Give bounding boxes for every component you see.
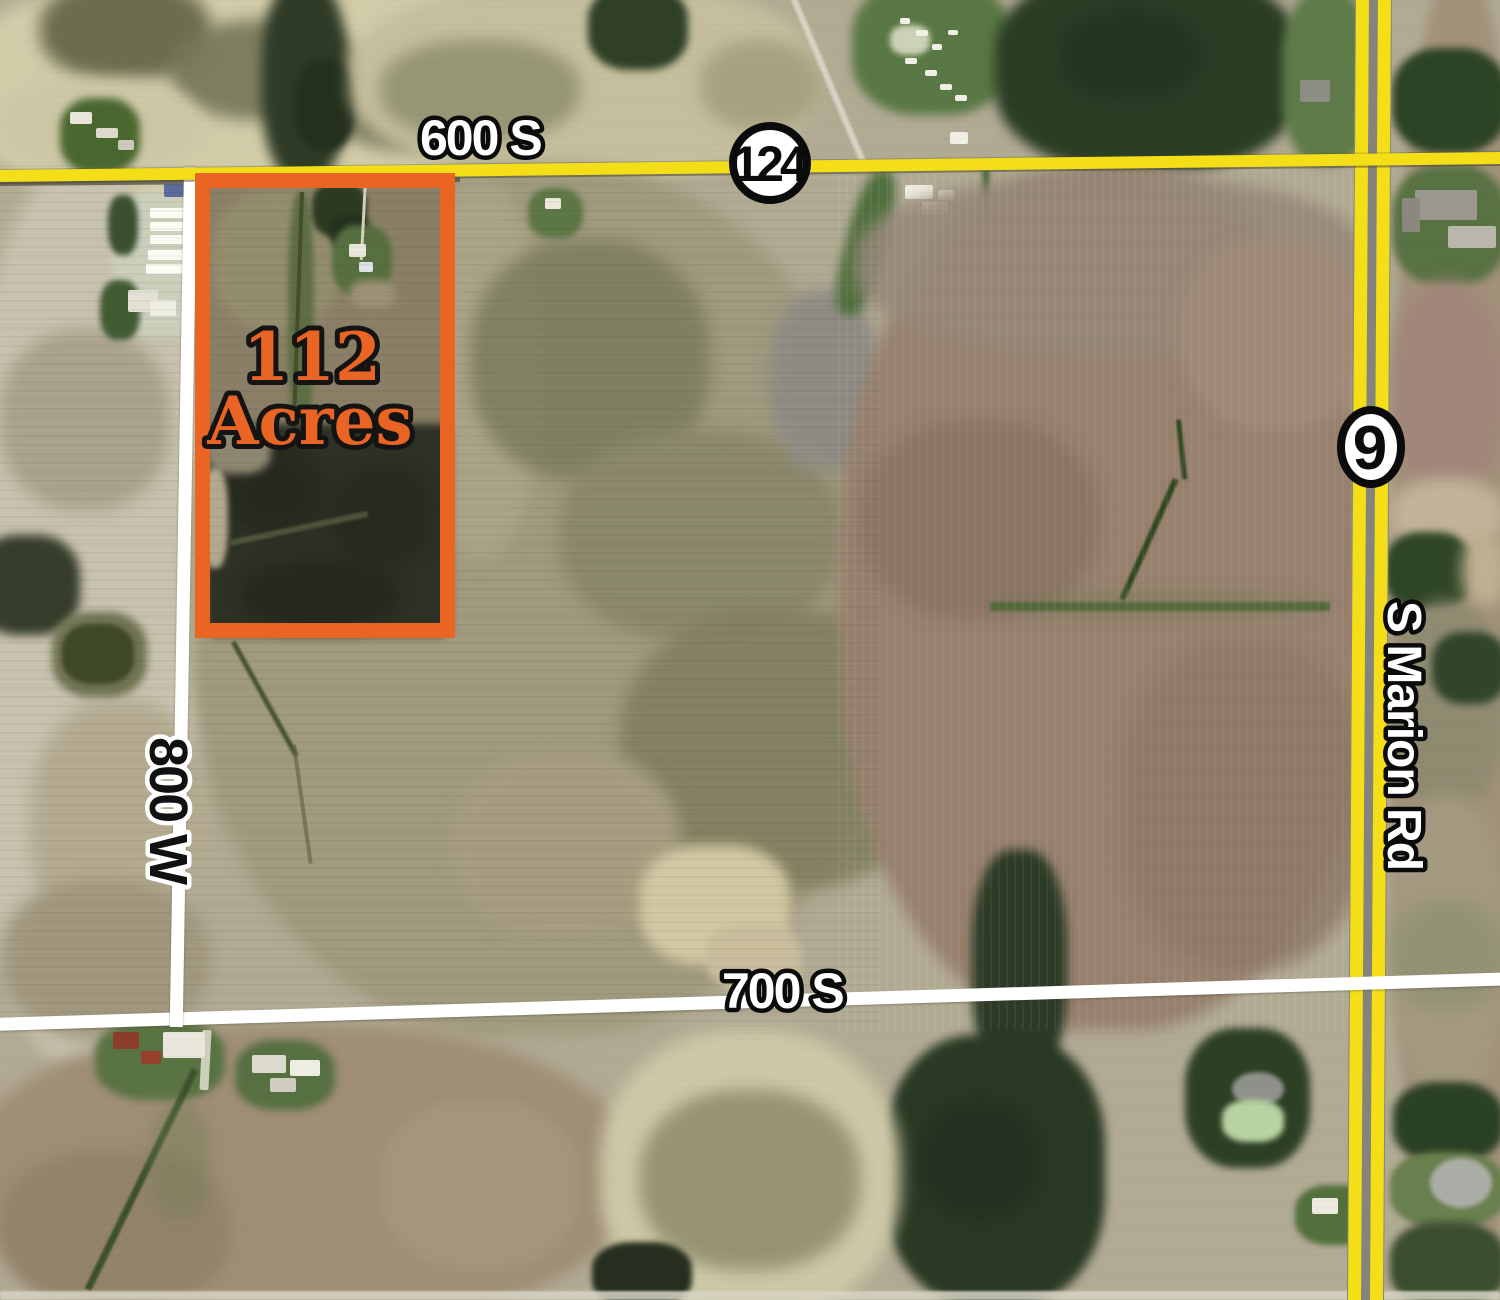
map-annotations: 600 S 700 S 800 W S Marion Rd 124 9 112 …: [0, 0, 1500, 1300]
road-label-700s: 700 S: [722, 963, 843, 1019]
road-label-600s: 600 S: [420, 110, 541, 166]
route-9-number: 9: [1353, 414, 1387, 483]
road-label-800w: 800 W: [138, 737, 198, 885]
aerial-parcel-map: 600 S 700 S 800 W S Marion Rd 124 9 112 …: [0, 0, 1500, 1300]
parcel-acreage-unit: Acres: [206, 382, 412, 460]
route-124-number: 124: [732, 136, 808, 192]
road-label-s-marion-rd: S Marion Rd: [1377, 601, 1430, 870]
